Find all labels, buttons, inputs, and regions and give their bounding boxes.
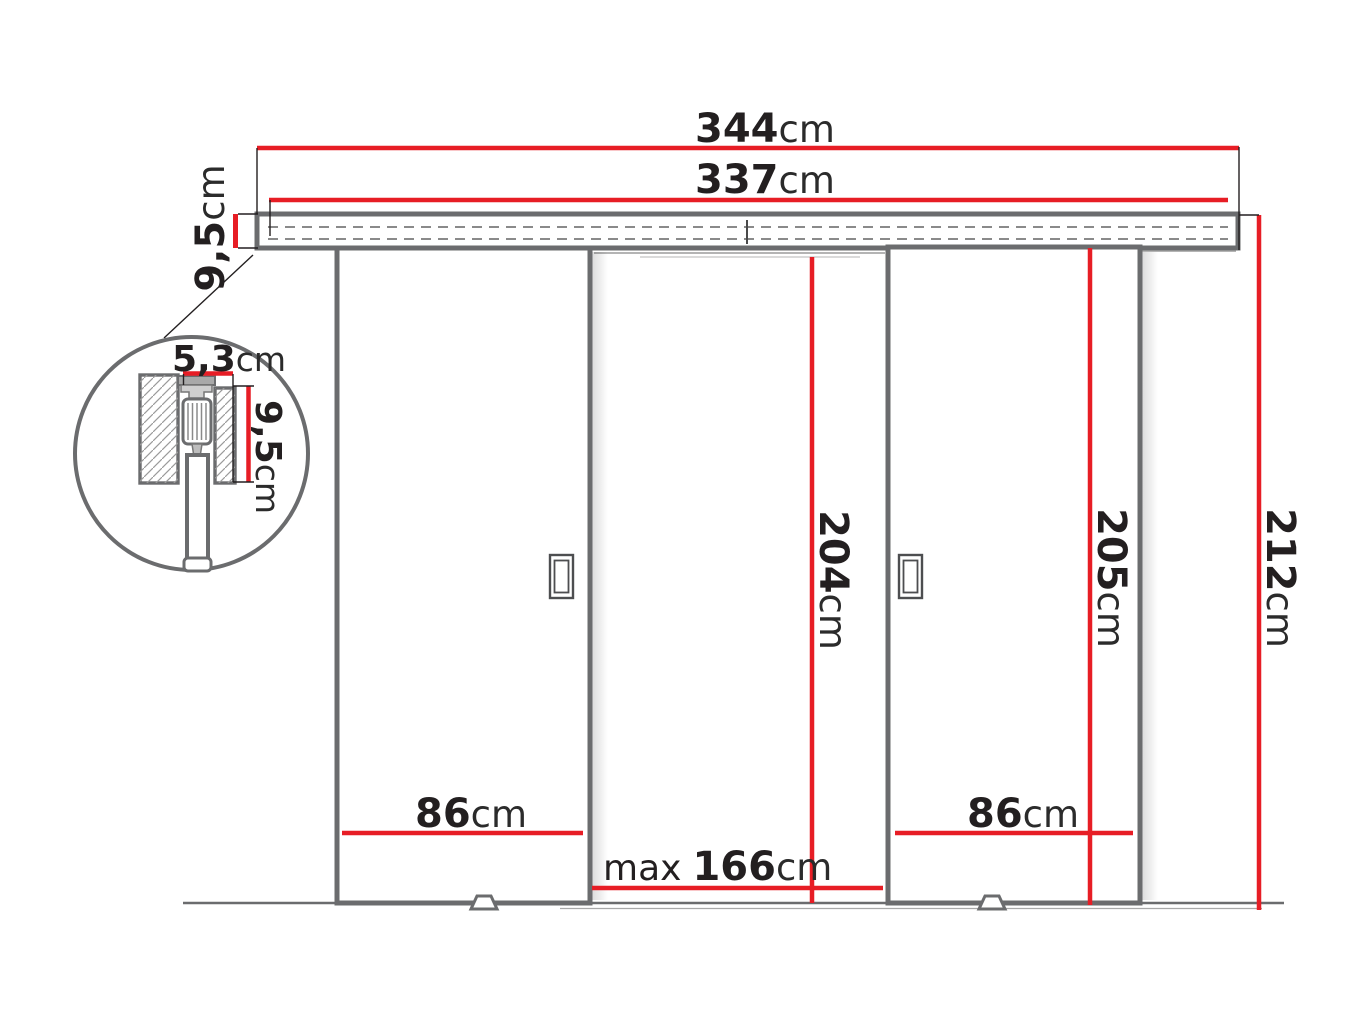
label-detail-height: 9,5cm — [247, 400, 288, 514]
technical-drawing-canvas: 5,3cm 9,5cm 344cm 337cm 9,5cm 86cm 86cm … — [0, 0, 1368, 1026]
label-track-outer: 344cm — [695, 106, 835, 152]
label-right-door-width: 86cm — [967, 791, 1079, 837]
right-door-handle — [899, 555, 922, 598]
label-track-height: 9,5cm — [188, 164, 234, 291]
detail-door-panel-cap — [184, 558, 211, 571]
label-opening-width: max166cm — [603, 844, 832, 890]
handle-inner — [904, 561, 918, 593]
label-door-height: 205cm — [1088, 508, 1134, 648]
handle-inner — [555, 561, 569, 593]
left-door-handle — [550, 555, 573, 598]
right-door-shadow — [1142, 252, 1158, 900]
track-detail-callout: 5,3cm 9,5cm — [75, 255, 308, 571]
detail-wall-right-hatch — [215, 388, 235, 483]
label-total-height: 212cm — [1257, 508, 1303, 648]
label-opening-height: 204cm — [810, 510, 856, 650]
left-door-shadow — [592, 252, 608, 900]
label-track-rail: 337cm — [695, 157, 835, 203]
label-detail-width: 5,3cm — [172, 339, 286, 380]
detail-wall-left-hatch — [140, 375, 178, 483]
detail-door-panel — [187, 455, 208, 563]
left-floor-guide — [471, 896, 497, 909]
label-left-door-width: 86cm — [415, 791, 527, 837]
right-floor-guide — [979, 896, 1005, 909]
sliding-door-diagram: 5,3cm 9,5cm 344cm 337cm 9,5cm 86cm 86cm … — [0, 0, 1368, 1026]
